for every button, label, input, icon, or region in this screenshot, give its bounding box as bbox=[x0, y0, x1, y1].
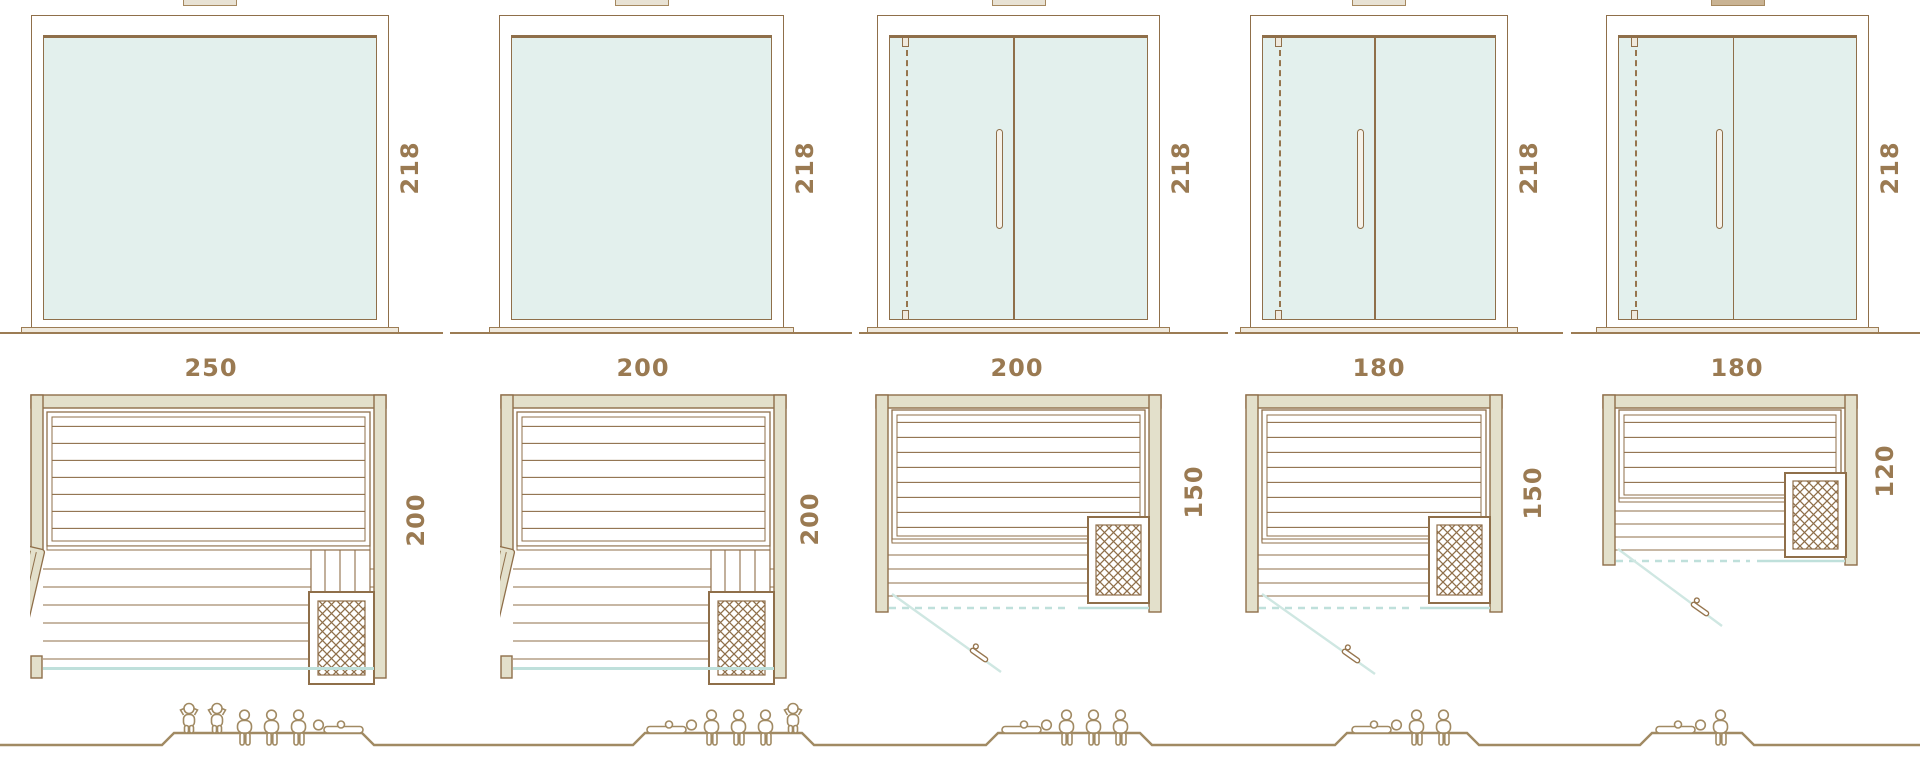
floor-plan-sauna-4 bbox=[1245, 393, 1507, 693]
door-hinge-icon bbox=[1631, 310, 1638, 320]
glass-front-line bbox=[513, 667, 774, 670]
elevation-sauna-1 bbox=[31, 15, 389, 328]
ground-line bbox=[1235, 332, 1563, 334]
door-hinge-icon bbox=[902, 37, 909, 47]
ground-line bbox=[859, 332, 1228, 334]
glass-door-panel bbox=[889, 35, 1148, 320]
door-handle bbox=[1716, 129, 1723, 229]
depth-label: 120 bbox=[1872, 443, 1898, 499]
person-sitting-icon bbox=[292, 710, 306, 745]
ground-line bbox=[1571, 332, 1920, 334]
roof-vent-tab bbox=[1711, 0, 1765, 6]
door-handle-plan bbox=[969, 643, 991, 663]
height-label: 218 bbox=[397, 140, 423, 196]
person-sitting-icon bbox=[1060, 710, 1074, 745]
person-lying-left-icon bbox=[314, 720, 363, 733]
person-sitting-icon bbox=[1714, 710, 1728, 745]
floor-plan-sauna-5 bbox=[1602, 393, 1862, 653]
person-sitting-icon bbox=[265, 710, 279, 745]
glass-front-line bbox=[43, 667, 374, 670]
height-label: 218 bbox=[1516, 140, 1542, 196]
depth-label: 150 bbox=[1181, 464, 1207, 520]
depth-label: 200 bbox=[403, 492, 429, 548]
roof-vent-tab bbox=[615, 0, 669, 6]
person-sitting-icon bbox=[1437, 710, 1451, 745]
elevation-sauna-3 bbox=[877, 15, 1160, 328]
depth-label: 200 bbox=[797, 491, 823, 547]
door-handle bbox=[1357, 129, 1364, 229]
person-sitting-icon bbox=[705, 710, 719, 745]
capacity-ground-line bbox=[0, 733, 1920, 745]
person-lying-right-icon bbox=[647, 720, 696, 733]
floor-plan-sauna-1 bbox=[30, 393, 390, 688]
door-hinge-icon bbox=[1631, 37, 1638, 47]
glass-panel bbox=[511, 35, 772, 320]
door-edge-line bbox=[1733, 38, 1735, 319]
roof-vent-tab bbox=[1352, 0, 1406, 6]
width-label: 200 bbox=[957, 354, 1077, 382]
door-hinge-dashed-line bbox=[906, 40, 908, 317]
width-label: 200 bbox=[583, 354, 703, 382]
person-sitting-icon bbox=[1410, 710, 1424, 745]
person-standing-icon bbox=[785, 704, 802, 734]
person-lying-right-icon bbox=[1656, 720, 1705, 733]
height-label: 218 bbox=[1168, 140, 1194, 196]
floor-plan-sauna-3 bbox=[875, 393, 1165, 693]
door-hinge-icon bbox=[1275, 310, 1282, 320]
person-lying-right-icon bbox=[1352, 720, 1401, 733]
elevation-sauna-5 bbox=[1606, 15, 1869, 328]
door-hinge-dashed-line bbox=[1635, 40, 1637, 317]
door-hinge-icon bbox=[902, 310, 909, 320]
people-group-sauna-1 bbox=[181, 704, 364, 746]
roof-vent-tab bbox=[992, 0, 1046, 6]
door-handle-plan bbox=[1690, 597, 1712, 617]
sauna-dimension-diagram: 218 218 218 218 218 250 200 200 180 180 … bbox=[0, 0, 1920, 770]
people-group-sauna-2 bbox=[647, 704, 802, 746]
height-label: 218 bbox=[792, 140, 818, 196]
roof-vent-tab bbox=[183, 0, 237, 6]
person-lying-right-icon bbox=[1002, 720, 1051, 733]
width-label: 180 bbox=[1319, 354, 1439, 382]
person-sitting-icon bbox=[732, 710, 746, 745]
person-standing-icon bbox=[181, 704, 198, 734]
glass-panel bbox=[43, 35, 377, 320]
ground-line bbox=[450, 332, 852, 334]
height-label: 218 bbox=[1877, 140, 1903, 196]
elevation-sauna-2 bbox=[499, 15, 784, 328]
door-hinge-icon bbox=[1275, 37, 1282, 47]
people-group-sauna-4 bbox=[1352, 710, 1451, 745]
door-handle-plan bbox=[1341, 644, 1363, 664]
width-label: 180 bbox=[1677, 354, 1797, 382]
floor-plan-sauna-2 bbox=[500, 393, 790, 688]
ground-line bbox=[0, 332, 443, 334]
door-handle bbox=[996, 129, 1003, 229]
people-group-sauna-5 bbox=[1656, 710, 1728, 745]
width-label: 250 bbox=[151, 354, 271, 382]
person-sitting-icon bbox=[1087, 710, 1101, 745]
person-sitting-icon bbox=[759, 710, 773, 745]
glass-door-panel bbox=[1262, 35, 1496, 320]
person-sitting-icon bbox=[1114, 710, 1128, 745]
depth-label: 150 bbox=[1520, 465, 1546, 521]
people-group-sauna-3 bbox=[1002, 710, 1128, 745]
elevation-sauna-4 bbox=[1250, 15, 1508, 328]
open-door-leaf bbox=[30, 544, 45, 650]
capacity-pictogram-row bbox=[0, 695, 1920, 770]
person-sitting-icon bbox=[238, 710, 252, 745]
door-edge-line bbox=[1374, 38, 1376, 319]
person-standing-icon bbox=[209, 704, 226, 734]
door-hinge-dashed-line bbox=[1279, 40, 1281, 317]
open-door-leaf bbox=[500, 544, 515, 650]
glass-door-panel bbox=[1618, 35, 1857, 320]
door-edge-line bbox=[1013, 38, 1015, 319]
